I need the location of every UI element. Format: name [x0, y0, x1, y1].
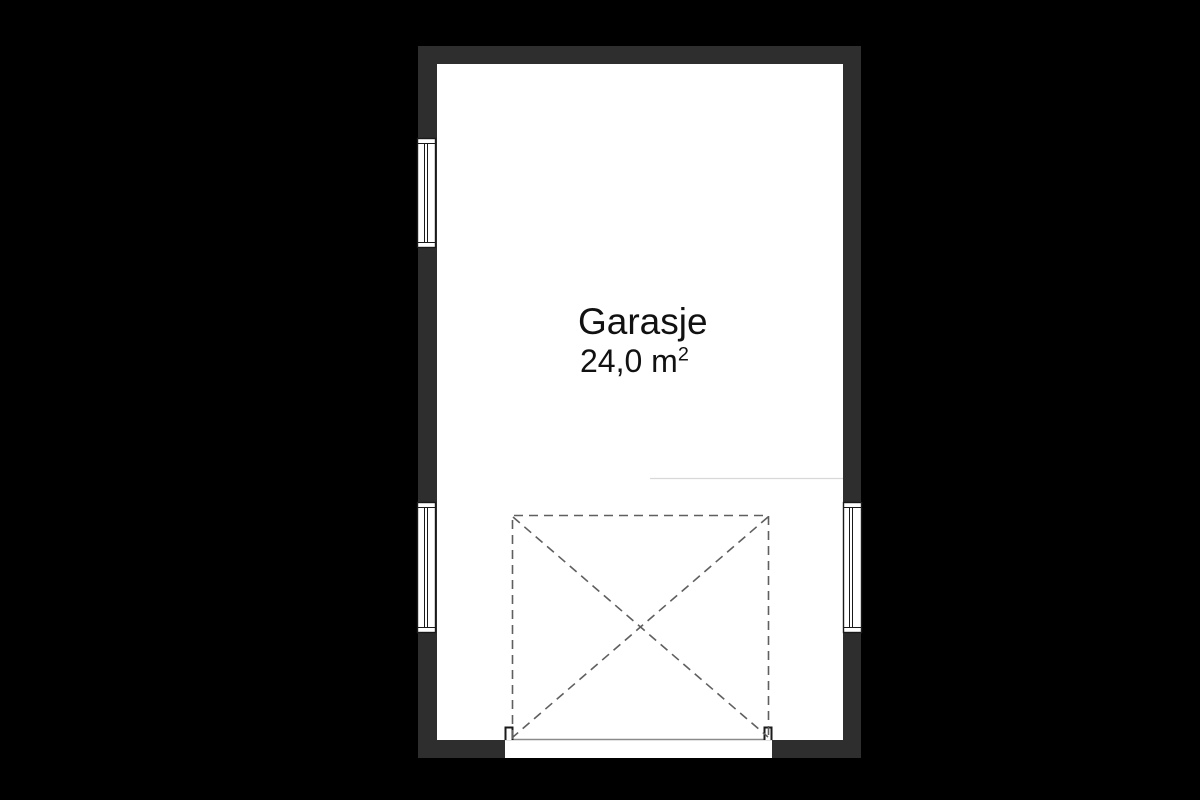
room-floor [437, 64, 843, 740]
window-frame [418, 503, 436, 633]
window-top-left-icon [418, 139, 436, 248]
floorplan-drawing [0, 0, 1200, 800]
floorplan-canvas: Garasje 24,0 m2 [0, 0, 1200, 800]
room-label: Garasje 24,0 m2 [578, 303, 708, 377]
garage-door-sill [505, 739, 772, 758]
door-jamb-left [506, 728, 513, 741]
window-bottom-left-icon [418, 503, 436, 633]
room-area-superscript: 2 [678, 343, 689, 365]
window-right-icon [844, 503, 862, 633]
room-area: 24,0 m2 [578, 345, 708, 377]
room-area-value: 24,0 m [580, 343, 678, 379]
window-frame [418, 139, 436, 248]
room-name: Garasje [578, 303, 708, 342]
